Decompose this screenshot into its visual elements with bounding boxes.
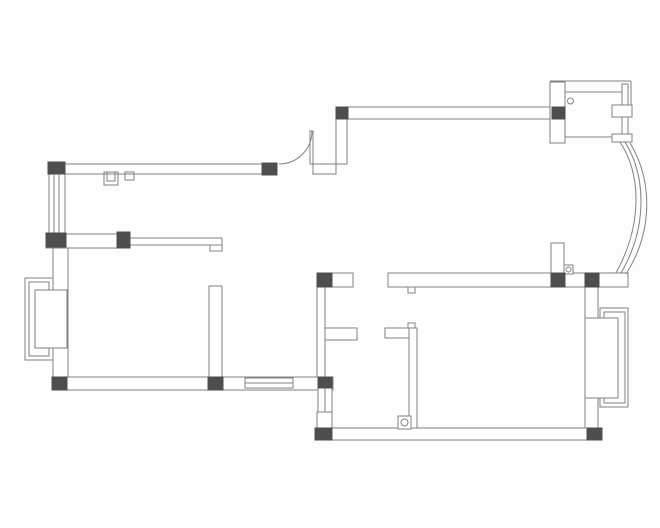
bathroom-left-wall (317, 287, 325, 377)
curved-bay-window-line-3 (626, 143, 647, 274)
left-bay-window-sash (35, 290, 67, 348)
column-left-mid-a (46, 233, 66, 247)
hall-door-stub-wall (551, 243, 564, 274)
column-top-left-corner (48, 162, 65, 174)
door-stop-tab-lower (408, 323, 415, 328)
bathroom-partition-vertical (409, 328, 417, 428)
entry-door-panel-upper (612, 105, 632, 117)
column-bottom-right-b (587, 428, 602, 440)
hall-door-pivot-circle (566, 267, 571, 272)
middle-partition-wall (209, 286, 222, 378)
counter-half-wall (130, 238, 222, 245)
curved-bay-window-line-1 (616, 142, 636, 273)
top-right-exterior-wall (336, 107, 565, 119)
top-left-exterior-wall (48, 164, 277, 174)
column-cross-mid (551, 273, 565, 287)
entry-pivot-circle (568, 98, 574, 104)
entry-door-panel-lower (612, 134, 632, 142)
column-entry (552, 107, 565, 119)
floor-plan-svg (0, 0, 660, 528)
hall-door-swing-arc (279, 131, 312, 164)
right-bay-window-sash (585, 318, 618, 398)
curved-bay-window-line-2 (621, 142, 641, 273)
column-cross-right (585, 273, 599, 287)
lower-left-wall-vertical (317, 412, 332, 428)
column-bottom-right-a (315, 428, 332, 440)
counter-half-wall-hook (210, 245, 222, 251)
column-bottom-left-corner (52, 377, 67, 390)
column-cross-left (317, 273, 332, 287)
door-jamb-wall (313, 164, 336, 174)
column-door-left (262, 163, 277, 175)
column-door-right (336, 107, 348, 119)
bathroom-stub-wall-left (325, 328, 357, 340)
left-window-frame (49, 174, 65, 233)
door-offset-wall-vertical (336, 119, 347, 164)
floor-plan-canvas (0, 0, 660, 528)
column-bottom-step (318, 377, 332, 388)
bottom-right-exterior-wall (315, 428, 602, 440)
bedroom-door-pivot-circle (401, 419, 408, 426)
column-bottom-mid (208, 377, 223, 390)
door-stop-tab-upper (408, 287, 415, 293)
column-left-mid-b (117, 232, 130, 248)
